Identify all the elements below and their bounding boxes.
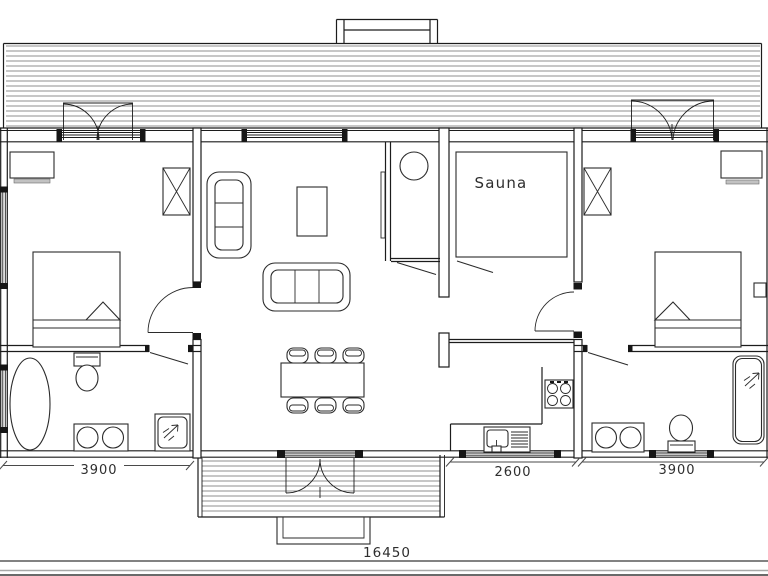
floor-plan-canvas: Sauna xyxy=(0,0,768,576)
dimension-total: 16450 xyxy=(0,545,768,561)
toilet-right xyxy=(668,415,695,452)
door-bedroom-left xyxy=(148,282,201,340)
wall-sauna-west xyxy=(386,142,391,261)
wall-bedroom-left-living xyxy=(193,128,201,458)
oval-bathtub-icon xyxy=(10,358,50,450)
west-wall xyxy=(1,128,8,458)
dimension-total-label: 16450 xyxy=(363,545,411,561)
twin-basin-vanity-right xyxy=(592,423,644,452)
bathtub-icon xyxy=(733,356,764,444)
ground-line xyxy=(0,571,768,576)
door-bedroom-right xyxy=(535,283,582,338)
coffee-table-icon xyxy=(297,187,327,236)
fireplace-flue-left xyxy=(163,168,190,215)
corner-sofa-icon xyxy=(207,172,251,258)
sofa-icon xyxy=(263,263,350,311)
roof-hatch xyxy=(4,44,762,129)
sauna-label: Sauna xyxy=(475,174,528,192)
toilet-left xyxy=(74,353,100,391)
dimension-right: 3900 xyxy=(578,458,768,479)
door-bathroom-right xyxy=(588,353,628,366)
porch-deck-icon xyxy=(198,455,445,517)
double-bed-right xyxy=(655,252,741,347)
kitchen-stove-icon xyxy=(545,380,573,408)
dimension-center: 2600 xyxy=(446,458,580,481)
step-icon xyxy=(277,517,370,544)
fireplace-flue-right xyxy=(584,168,611,215)
double-bed-left xyxy=(33,252,120,347)
wardrobe-right xyxy=(721,151,762,184)
wall-kitchen-north xyxy=(449,340,574,343)
wall-washroom-kitchen xyxy=(439,128,449,367)
shower-cabin-icon xyxy=(155,414,190,451)
door-washroom xyxy=(397,263,436,275)
kitchen-sink-icon xyxy=(484,427,530,452)
radiator-sauna-wall xyxy=(381,172,385,238)
sauna-heater-icon xyxy=(400,152,428,180)
dimension-right-label: 3900 xyxy=(658,463,695,478)
door-sauna xyxy=(457,261,493,273)
nightstand-icon xyxy=(754,283,766,297)
dimension-center-label: 2600 xyxy=(494,465,531,480)
twin-basin-vanity-left xyxy=(74,424,128,451)
dimension-left-label: 3900 xyxy=(80,463,117,478)
dimension-left: 3900 xyxy=(0,461,194,478)
sauna-room: Sauna xyxy=(456,152,567,257)
door-bathroom-left xyxy=(150,353,188,365)
wardrobe-left xyxy=(10,152,54,183)
wall-washroom-south xyxy=(391,259,440,262)
chimney-icon xyxy=(337,20,438,44)
wall-kitchen-bedroom-right xyxy=(574,128,582,458)
dining-table-icon xyxy=(281,363,364,397)
floor-plan-drawing: Sauna xyxy=(0,0,768,576)
french-doors-patio xyxy=(286,458,354,498)
